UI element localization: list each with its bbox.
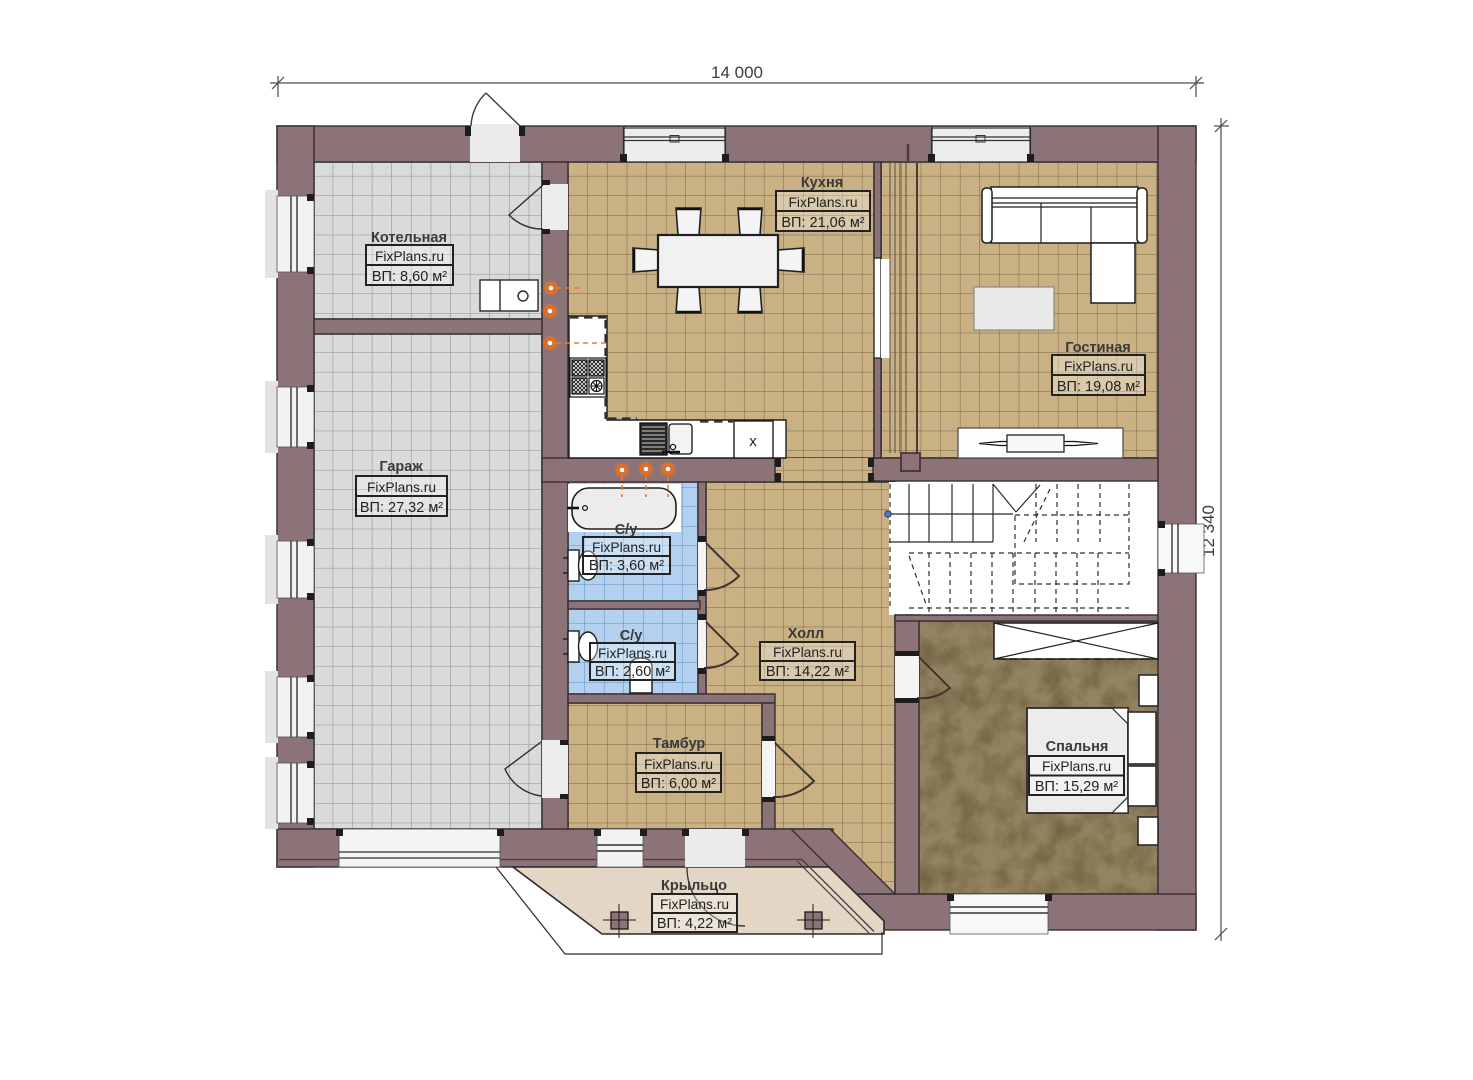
svg-text:Спальня: Спальня <box>1046 739 1109 755</box>
svg-text:FixPlans.ru: FixPlans.ru <box>1042 759 1111 774</box>
svg-text:FixPlans.ru: FixPlans.ru <box>788 195 857 210</box>
svg-text:ВП: 2,60 м²: ВП: 2,60 м² <box>595 664 670 680</box>
svg-text:FixPlans.ru: FixPlans.ru <box>644 757 713 772</box>
svg-text:FixPlans.ru: FixPlans.ru <box>592 540 661 555</box>
svg-text:ВП: 8,60 м²: ВП: 8,60 м² <box>372 269 447 285</box>
svg-text:FixPlans.ru: FixPlans.ru <box>1064 359 1133 374</box>
svg-text:Холл: Холл <box>788 626 824 642</box>
svg-text:ВП: 21,06 м²: ВП: 21,06 м² <box>781 215 864 231</box>
svg-text:FixPlans.ru: FixPlans.ru <box>367 480 436 495</box>
svg-text:С/у: С/у <box>615 522 638 538</box>
svg-text:Тамбур: Тамбур <box>653 736 706 752</box>
svg-text:FixPlans.ru: FixPlans.ru <box>375 249 444 264</box>
svg-text:ВП: 6,00 м²: ВП: 6,00 м² <box>641 776 716 792</box>
svg-text:Гараж: Гараж <box>379 459 423 475</box>
svg-text:FixPlans.ru: FixPlans.ru <box>660 897 729 912</box>
svg-text:С/у: С/у <box>620 628 643 644</box>
svg-text:Гостиная: Гостиная <box>1065 340 1131 356</box>
svg-text:ВП: 3,60 м²: ВП: 3,60 м² <box>589 558 664 574</box>
svg-text:ВП: 4,22 м²: ВП: 4,22 м² <box>657 916 732 932</box>
svg-text:ВП: 15,29 м²: ВП: 15,29 м² <box>1035 779 1118 795</box>
svg-text:Крыльцо: Крыльцо <box>661 878 727 894</box>
svg-text:FixPlans.ru: FixPlans.ru <box>598 646 667 661</box>
svg-text:FixPlans.ru: FixPlans.ru <box>773 645 842 660</box>
svg-text:Кухня: Кухня <box>801 175 843 191</box>
svg-text:Котельная: Котельная <box>371 230 447 246</box>
svg-text:ВП: 14,22 м²: ВП: 14,22 м² <box>766 664 849 680</box>
svg-text:x: x <box>749 433 757 450</box>
svg-text:14 000: 14 000 <box>711 63 763 82</box>
svg-text:ВП: 19,08 м²: ВП: 19,08 м² <box>1057 379 1140 395</box>
svg-text:ВП: 27,32 м²: ВП: 27,32 м² <box>360 500 443 516</box>
